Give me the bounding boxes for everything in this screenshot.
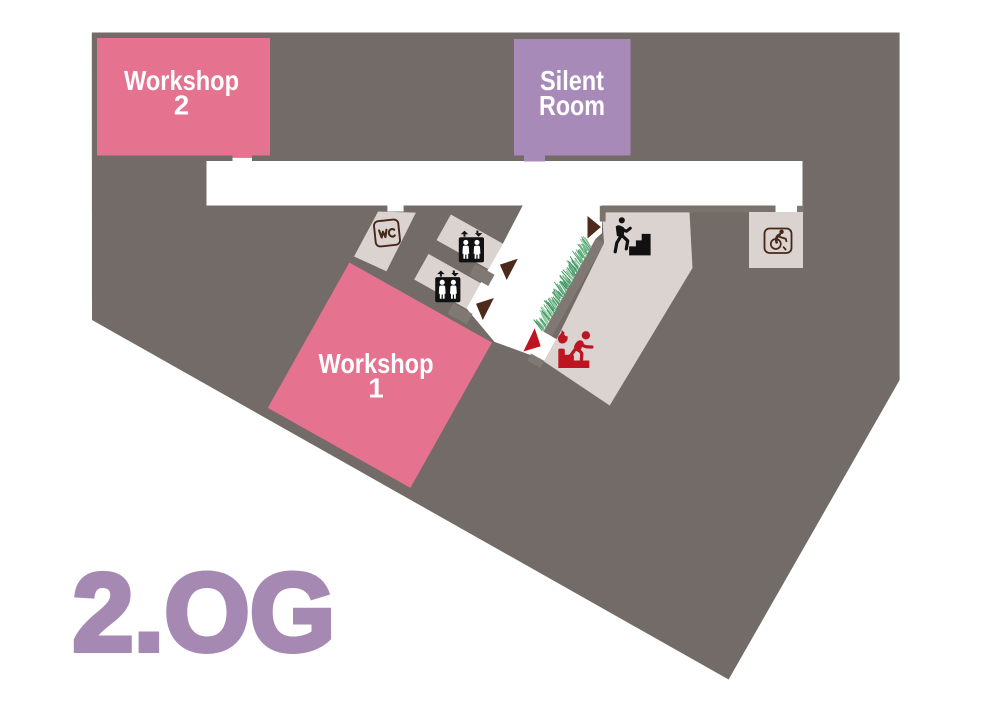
svg-text:1: 1 — [368, 373, 383, 404]
svg-text:2.OG: 2.OG — [73, 552, 336, 675]
svg-text:2: 2 — [174, 90, 189, 121]
svg-text:Room: Room — [539, 90, 605, 121]
